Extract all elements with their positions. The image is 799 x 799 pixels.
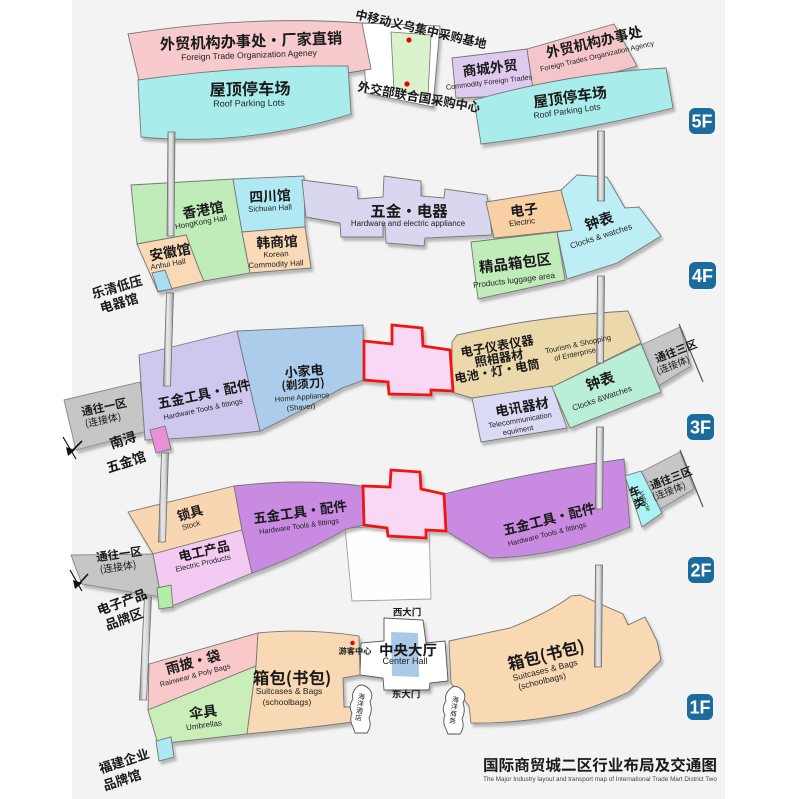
svg-text:Korean: Korean <box>263 249 289 259</box>
svg-text:4F: 4F <box>692 266 713 286</box>
svg-text:Suitcases & Bags: Suitcases & Bags <box>256 686 323 696</box>
svg-text:Hardware and electric applianc: Hardware and electric appliance <box>351 219 466 228</box>
svg-text:The Major Industry layout and: The Major Industry layout and transport … <box>483 776 717 783</box>
svg-text:2F: 2F <box>690 560 711 580</box>
svg-text:Center Hall: Center Hall <box>382 656 427 666</box>
svg-text:1F: 1F <box>689 697 710 717</box>
svg-text:Roof Parking Lots: Roof Parking Lots <box>213 98 285 109</box>
svg-text:(schoolbags): (schoolbags) <box>263 697 312 707</box>
svg-text:5F: 5F <box>691 111 712 131</box>
svg-text:3F: 3F <box>690 417 711 437</box>
